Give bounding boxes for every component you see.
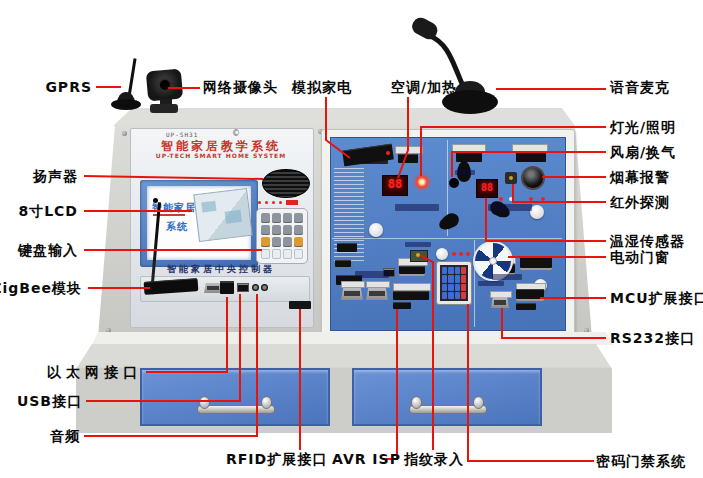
module-caption [478,281,504,286]
callout-speaker: 扬声器 [33,168,78,186]
callout-rfid: RFID扩展接口 [226,451,327,469]
callout-infrared: 红外探测 [610,194,670,212]
callout-avrisp: AVR ISP [332,451,401,467]
panel-led [541,197,545,201]
panel-led [466,252,470,256]
env-display: 88 [476,179,498,198]
avr-isp-header [393,302,411,309]
screw [122,131,127,136]
status-led-row [258,198,310,206]
lcd-text-line2: 系统 [166,220,188,234]
gprs-antenna-base [111,99,141,110]
temperature-display: 88 [382,175,408,196]
panel-led [452,252,456,256]
audio-jack [261,284,268,291]
module-label-strip [341,281,365,288]
panel-led [529,197,533,201]
module-caption [405,242,431,247]
fingerprint-module [410,250,428,262]
callout-zigbee: ZigBee模块 [0,280,82,298]
section-title-alarm [492,274,522,280]
panel-led [509,197,513,201]
callout-fan: 风扇/换气 [610,144,676,162]
relay-led [386,151,390,155]
lighting-led [413,173,431,191]
panel-serial-port [341,288,363,300]
callout-window: 电动门窗 [610,249,670,267]
callout-appliance: 模拟家电 [292,79,352,97]
password-keypad [436,261,472,305]
callout-usb: USB接口 [17,393,82,411]
audio-jack [252,284,259,291]
cabinet-top-lip [88,332,618,345]
module-label-strip [490,291,512,298]
zigbee-antenna-tip [153,198,158,203]
callout-fingerprint: 指纹录入 [404,451,464,469]
panel-button [530,205,544,219]
usb-port [237,283,249,292]
module-label-strip [395,146,423,154]
callout-gprs: GPRS [45,79,92,95]
section-title-room-control [395,204,439,211]
callout-keyinput: 键盘输入 [18,242,78,260]
infrared-sensor [505,172,517,184]
panel-divider [332,238,562,239]
device-title-en: UP-TECH SMART HOME SYSTEM [130,152,312,159]
callout-light: 灯光/照明 [610,119,676,137]
camera-lens-icon [158,78,172,92]
smart-home-trainer-diagram: UP-SH31 © 智能家居教学系统 UP-TECH SMART HOME SY… [0,0,703,478]
panel-button [369,223,383,237]
drawer-handle [409,396,485,414]
rfid-expansion-connector [289,301,311,309]
module-chip [337,243,357,252]
drawer-handle [197,396,273,414]
callout-camera: 网络摄像头 [203,79,278,97]
voice-microphone [400,12,510,117]
panel-led [499,197,503,201]
module-label-strip [452,144,486,152]
section-title-access-control [355,271,389,278]
model-number: UP-SH31 [166,131,198,138]
module-label-strip [366,281,390,288]
callout-smoke: 烟幕报警 [610,169,670,187]
module-chip [399,266,425,276]
lcd-floorplan-image [193,188,252,242]
panel-serial-port [366,288,388,300]
callout-doorlock: 密码门禁系统 [596,453,686,471]
central-controller-label: 智能家居中央控制器 [136,263,306,276]
panel-led [459,252,463,256]
callout-rs232: RS232接口 [610,330,695,348]
module-chip [335,260,351,267]
module-chip [398,154,418,163]
mcu-expansion-port [516,289,544,301]
module-label-strip [512,144,548,152]
module-chip [516,152,546,162]
smoke-detector [521,166,545,190]
rs232-connector [491,297,509,308]
panel-button [436,248,448,260]
callout-mcu: MCU扩展接口 [610,290,703,308]
speaker-grille [262,169,310,198]
callout-audio: 音频 [50,428,80,446]
camera-base [150,104,178,113]
callout-lcd: 8寸LCD [18,203,78,221]
module-chip [516,303,536,310]
input-keypad [256,208,308,264]
callout-mic: 语音麦克 [610,79,670,97]
module-chip [456,152,482,162]
module-chip [520,257,552,270]
module-caption [455,170,475,175]
callout-aircon: 空调/加热 [391,79,457,97]
callout-ethernet: 以太网接口 [47,364,142,382]
rfid-reader-module [393,291,429,300]
section-title-env-monitor [488,204,532,211]
rfid-label-strip [393,283,431,291]
copyright-mark: © [232,129,240,138]
ethernet-port [220,281,234,294]
